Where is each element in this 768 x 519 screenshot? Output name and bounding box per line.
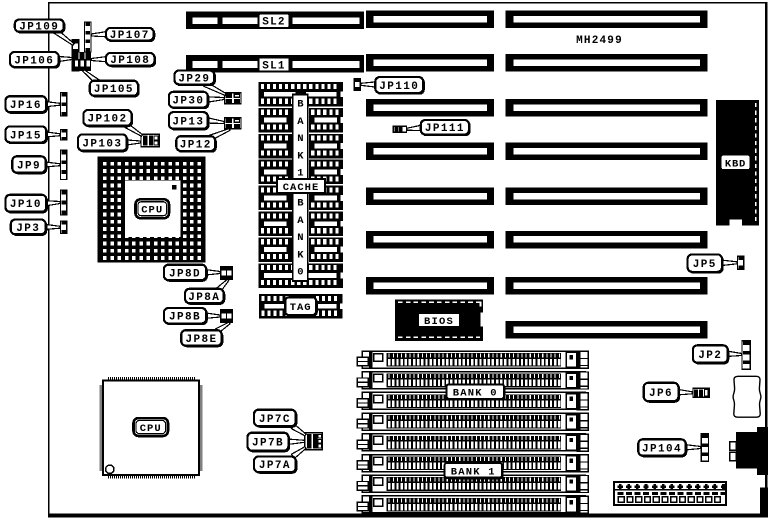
svg-text:JP107: JP107 bbox=[110, 30, 150, 42]
svg-text:K: K bbox=[297, 150, 304, 162]
svg-text:A: A bbox=[297, 116, 304, 128]
svg-text:JP8E: JP8E bbox=[185, 334, 217, 346]
svg-text:0: 0 bbox=[297, 267, 303, 279]
svg-text:JP111: JP111 bbox=[425, 123, 465, 135]
svg-text:JP7C: JP7C bbox=[259, 414, 291, 426]
svg-text:A: A bbox=[297, 215, 304, 227]
svg-text:JP103: JP103 bbox=[82, 138, 122, 150]
svg-text:JP2: JP2 bbox=[698, 350, 722, 362]
svg-text:JP8A: JP8A bbox=[188, 292, 220, 304]
svg-text:JP10: JP10 bbox=[10, 199, 42, 211]
svg-text:JP29: JP29 bbox=[178, 73, 210, 85]
svg-text:CPU: CPU bbox=[141, 205, 163, 217]
svg-text:BANK 1: BANK 1 bbox=[451, 466, 496, 478]
svg-text:JP3: JP3 bbox=[16, 223, 40, 235]
svg-text:SL1: SL1 bbox=[262, 60, 285, 72]
svg-text:JP5: JP5 bbox=[693, 259, 717, 271]
svg-text:JP30: JP30 bbox=[172, 96, 204, 108]
svg-text:BIOS: BIOS bbox=[424, 316, 454, 328]
svg-text:CACHE: CACHE bbox=[283, 182, 320, 194]
svg-text:N: N bbox=[297, 133, 303, 145]
svg-text:JP102: JP102 bbox=[87, 114, 127, 126]
svg-text:JP12: JP12 bbox=[180, 140, 212, 152]
svg-text:KBD: KBD bbox=[725, 158, 746, 170]
svg-text:JP8D: JP8D bbox=[169, 268, 201, 280]
svg-text:JP7A: JP7A bbox=[259, 460, 291, 472]
svg-text:JP6: JP6 bbox=[649, 388, 673, 400]
svg-text:JP104: JP104 bbox=[642, 443, 682, 455]
svg-text:MH2499: MH2499 bbox=[576, 35, 623, 47]
svg-text:JP8B: JP8B bbox=[169, 312, 201, 324]
svg-text:CPU: CPU bbox=[140, 423, 162, 435]
svg-text:SL2: SL2 bbox=[262, 17, 285, 29]
svg-text:JP15: JP15 bbox=[10, 130, 42, 142]
svg-text:BANK 0: BANK 0 bbox=[453, 387, 498, 399]
svg-text:JP109: JP109 bbox=[19, 22, 59, 34]
svg-text:JP13: JP13 bbox=[172, 116, 204, 128]
svg-text:JP108: JP108 bbox=[110, 55, 150, 67]
svg-text:1: 1 bbox=[297, 168, 303, 180]
svg-text:B: B bbox=[297, 99, 304, 111]
svg-text:B: B bbox=[297, 198, 304, 210]
svg-text:JP106: JP106 bbox=[14, 55, 54, 67]
svg-text:TAG: TAG bbox=[290, 302, 312, 314]
svg-text:JP9: JP9 bbox=[17, 160, 41, 172]
svg-text:JP7B: JP7B bbox=[252, 438, 284, 450]
svg-text:N: N bbox=[297, 232, 303, 244]
svg-text:JP105: JP105 bbox=[94, 84, 134, 96]
svg-text:JP16: JP16 bbox=[10, 100, 42, 112]
svg-text:JP110: JP110 bbox=[379, 81, 419, 93]
svg-text:K: K bbox=[297, 249, 304, 261]
